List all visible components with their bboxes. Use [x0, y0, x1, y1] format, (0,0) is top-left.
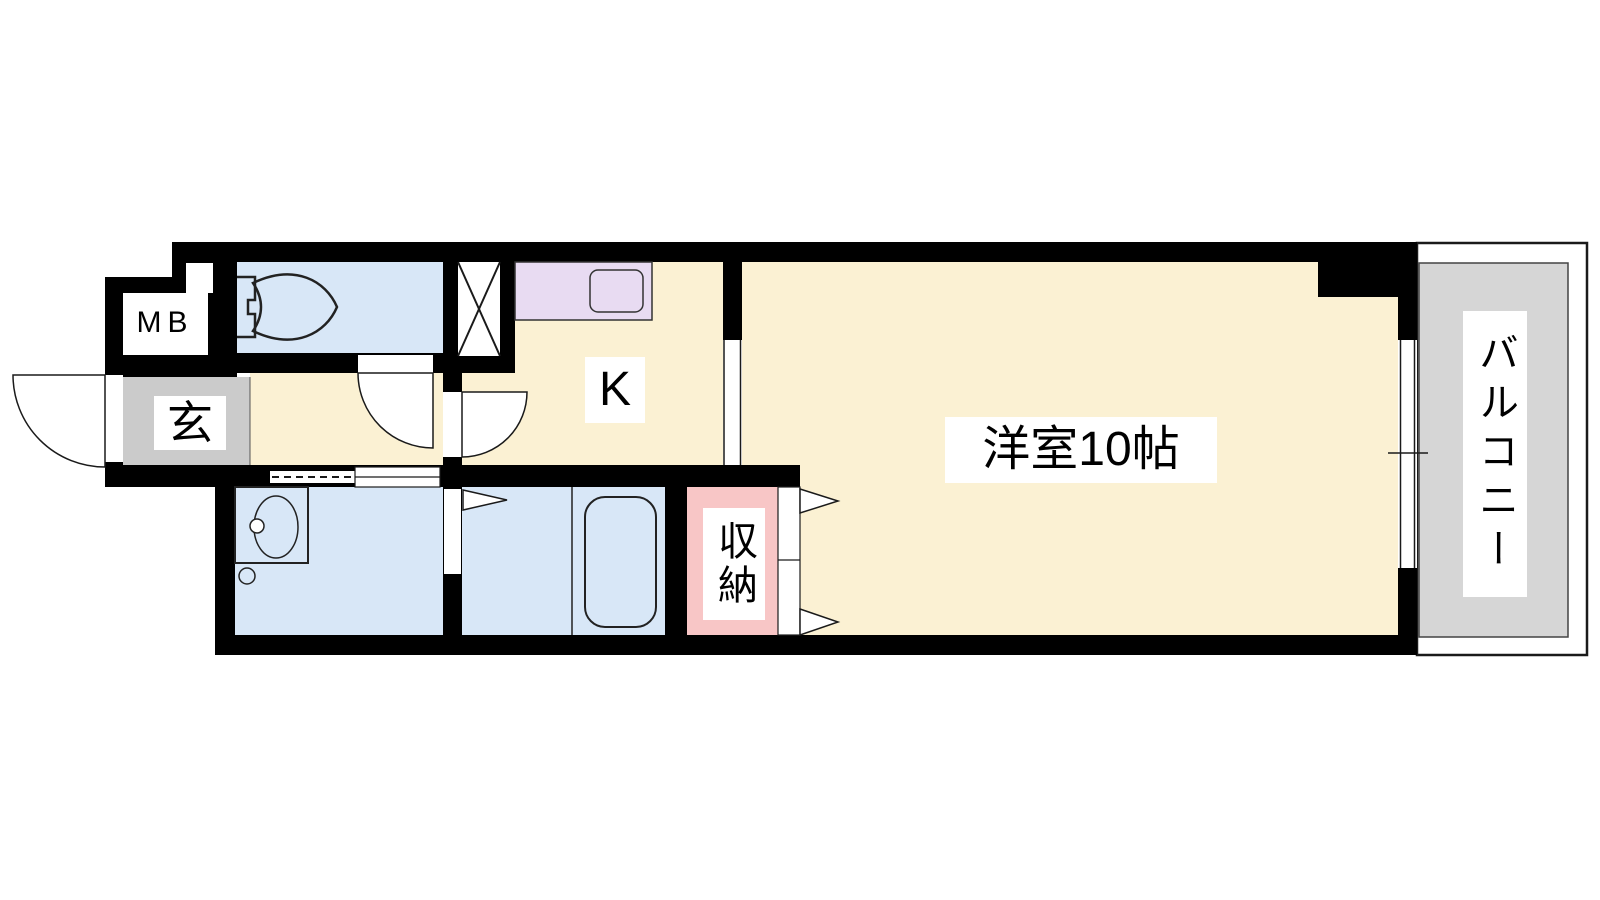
wall-kitchen-bottom — [443, 465, 800, 487]
wall-shaft-bottom — [443, 356, 515, 373]
front-door-swing — [13, 375, 105, 467]
entrance-label: 玄 — [154, 396, 226, 450]
floor-plan: MB 玄 K 洋室10帖 収納 バルコニー — [0, 0, 1600, 900]
kitchen-label: K — [585, 357, 645, 423]
wall-right-lower — [1398, 568, 1417, 655]
wall-top — [172, 242, 1417, 262]
wall-toilet-right — [443, 242, 458, 373]
wall-bottom — [215, 635, 1417, 655]
bathroom-floor — [462, 487, 665, 635]
toilet-door-opening — [358, 355, 433, 373]
main-room-label: 洋室10帖 — [945, 417, 1217, 483]
toilet-room-floor — [237, 262, 443, 353]
floor-plan-drawing — [0, 0, 1600, 900]
front-door-opening — [104, 375, 123, 462]
kitchen-mainroom-passage — [723, 340, 742, 465]
kitchen-door-opening — [443, 392, 462, 457]
storage-label: 収納 — [703, 508, 765, 620]
bath-door-opening — [444, 489, 461, 574]
meter-box-label: MB — [121, 291, 209, 355]
wall-right-upper — [1398, 242, 1417, 340]
washroom-floor — [235, 487, 443, 635]
washbasin-faucet-icon — [250, 519, 264, 533]
kitchen-counter — [515, 262, 652, 320]
storage-door-band — [778, 487, 800, 635]
pipe-shaft-icon — [458, 262, 500, 356]
balcony-label: バルコニー — [1463, 311, 1527, 597]
wall-bath-storage — [665, 487, 687, 635]
wall-kitchen-mainroom — [723, 262, 742, 340]
wall-shaft-right — [500, 242, 515, 373]
meter-box-notch — [186, 263, 213, 293]
wall-washroom-left — [215, 468, 235, 655]
